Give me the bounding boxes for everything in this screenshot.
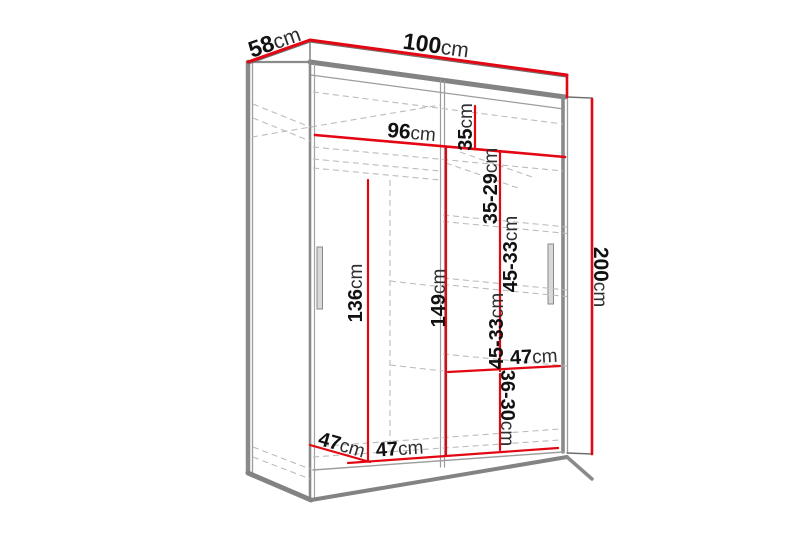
dim-label-middle-shelf-b: 45-33cm — [486, 293, 508, 369]
dim-label-upper-shelf: 35-29cm — [480, 148, 502, 224]
dim-label-depth-top: 58cm — [245, 20, 304, 62]
dim-label-height: 200cm — [589, 247, 612, 307]
dim-label-shelf-width: 47cm — [509, 345, 558, 369]
dimension-labels: 58cm 100cm 96cm 35cm 35-29cm 45-33cm 45-… — [245, 20, 612, 462]
dim-label-interior-width: 96cm — [386, 119, 437, 146]
dim-label-bottom-width: 47cm — [375, 436, 424, 461]
dim-label-width-top: 100cm — [401, 28, 470, 63]
dim-label-middle-shelf-a: 45-33cm — [500, 216, 522, 292]
dim-label-bottom-shelf: 36-30cm — [496, 370, 518, 446]
dim-label-bottom-depth: 47cm — [316, 428, 368, 462]
wardrobe-outline — [248, 40, 592, 500]
wardrobe-diagram: 58cm 100cm 96cm 35cm 35-29cm 45-33cm 45-… — [0, 0, 800, 533]
dimension-lines — [248, 40, 592, 463]
dim-label-top-shelf: 35cm — [455, 103, 477, 151]
left-door-handle — [317, 247, 323, 309]
dim-label-hanging-height: 136cm — [345, 264, 367, 323]
dim-label-center-height: 149cm — [428, 269, 450, 328]
diagram-canvas: 58cm 100cm 96cm 35cm 35-29cm 45-33cm 45-… — [0, 0, 800, 533]
